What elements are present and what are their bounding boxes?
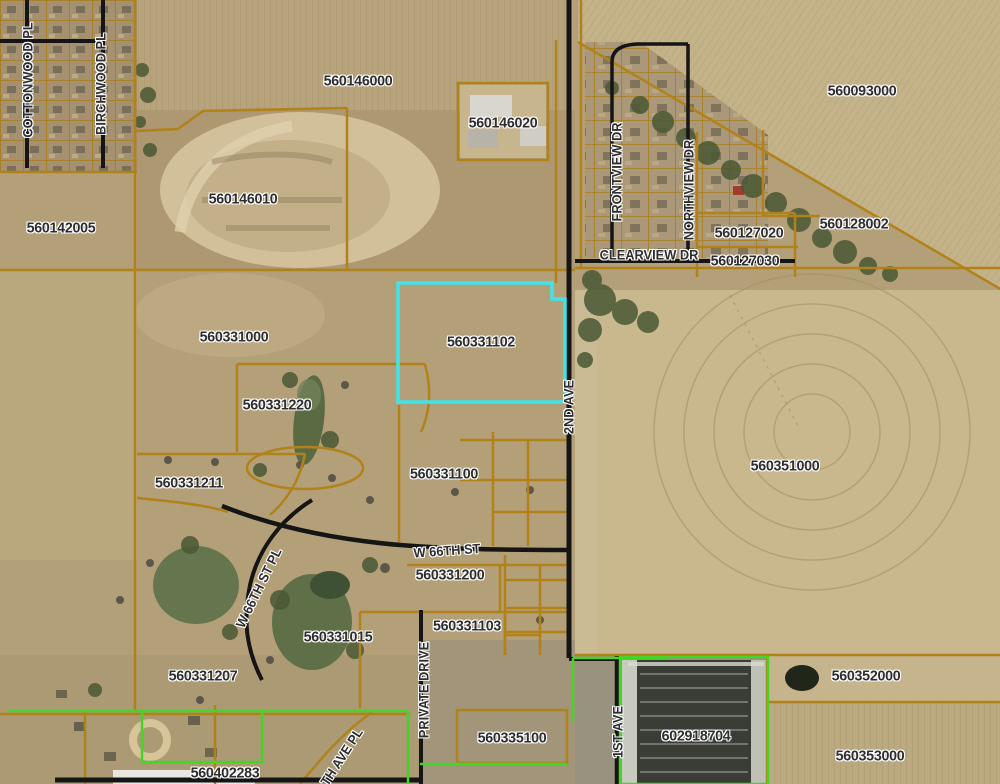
terrain [0,0,1000,784]
map-canvas[interactable]: 560146000 560146020 560146010 560142005 … [0,0,1000,784]
aerial-imagery [0,0,1000,784]
